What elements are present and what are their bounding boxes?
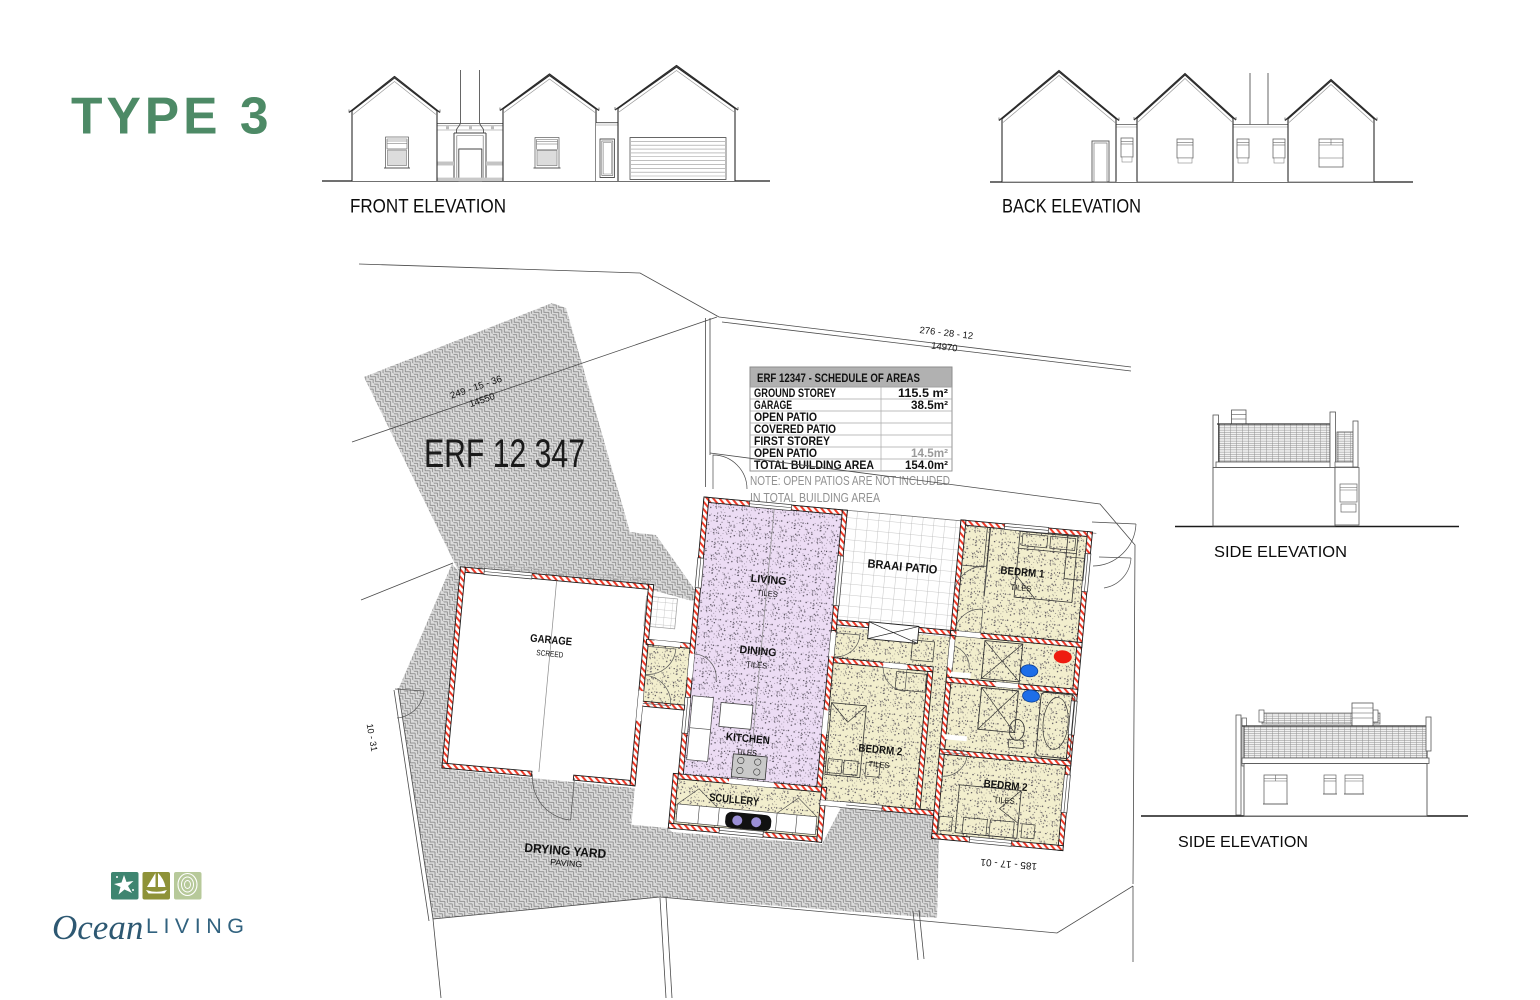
svg-text:TYPE 3: TYPE 3: [71, 87, 272, 145]
svg-text:154.0m²: 154.0m²: [905, 460, 948, 472]
svg-text:FIRST STOREY: FIRST STOREY: [754, 436, 830, 448]
svg-text:Ocean: Ocean: [52, 908, 143, 947]
svg-text:NOTE: OPEN PATIOS ARE NOT INCL: NOTE: OPEN PATIOS ARE NOT INCLUDED: [750, 474, 950, 488]
svg-text:ERF 12 347: ERF 12 347: [424, 432, 585, 476]
svg-text:COVERED PATIO: COVERED PATIO: [754, 424, 836, 436]
svg-text:OPEN PATIO: OPEN PATIO: [754, 412, 817, 424]
svg-text:LIVING: LIVING: [146, 914, 250, 938]
svg-text:GROUND STOREY: GROUND STOREY: [754, 388, 836, 400]
svg-text:ERF 12347 - SCHEDULE OF AREAS: ERF 12347 - SCHEDULE OF AREAS: [757, 373, 920, 385]
svg-text:14.5m²: 14.5m²: [911, 448, 948, 460]
svg-text:38.5m²: 38.5m²: [911, 400, 948, 412]
svg-text:FRONT ELEVATION: FRONT ELEVATION: [350, 197, 506, 218]
svg-text:OPEN PATIO: OPEN PATIO: [754, 448, 817, 460]
svg-text:GARAGE: GARAGE: [754, 400, 792, 412]
svg-text:BACK ELEVATION: BACK ELEVATION: [1002, 197, 1141, 218]
svg-text:SIDE ELEVATION: SIDE ELEVATION: [1178, 834, 1308, 851]
svg-text:TOTAL BUILDING AREA: TOTAL BUILDING AREA: [754, 460, 874, 472]
svg-text:115.5 m²: 115.5 m²: [898, 388, 948, 400]
svg-text:SIDE ELEVATION: SIDE ELEVATION: [1214, 544, 1347, 561]
